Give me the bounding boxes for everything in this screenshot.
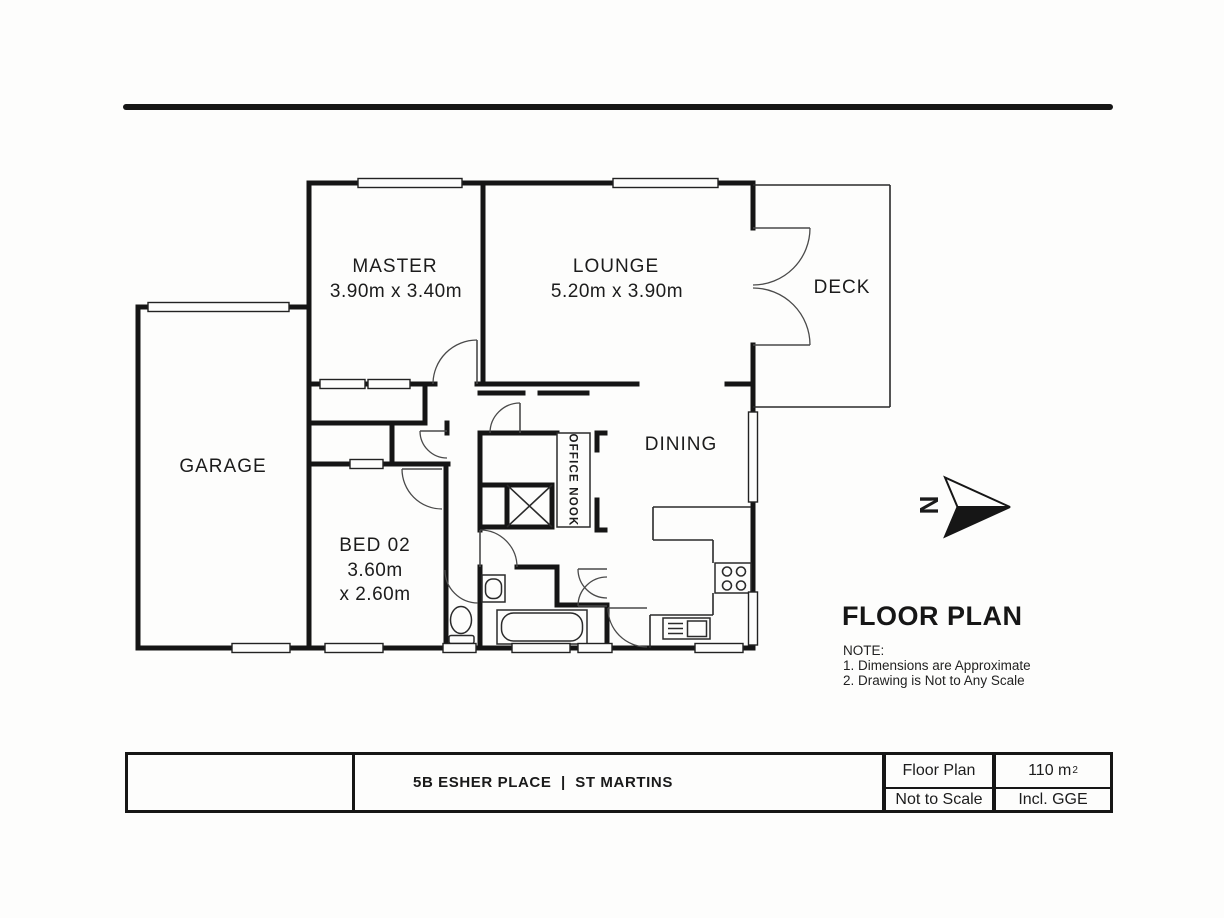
scale-text: Not to Scale: [886, 789, 992, 810]
note-line-2: 2. Drawing is Not to Any Scale: [843, 673, 1025, 688]
plan-heading: FLOOR PLAN: [842, 601, 1023, 631]
north-label: N: [914, 496, 944, 515]
kitchen-counter: [650, 507, 751, 648]
note-line-1: 1. Dimensions are Approximate: [843, 658, 1031, 673]
kitchen-sink: [663, 618, 710, 639]
lounge-dims: 5.20m x 3.90m: [551, 281, 683, 302]
bed02-dims-2: x 2.60m: [339, 584, 410, 605]
floor-plan-drawing: MASTER 3.90m x 3.40m LOUNGE 5.20m x 3.90…: [0, 0, 1224, 745]
stove: [715, 563, 751, 593]
dining-label: DINING: [645, 434, 718, 455]
bed02-dims-1: 3.60m: [347, 560, 402, 581]
master-label: MASTER: [352, 256, 437, 277]
master-dims: 3.90m x 3.40m: [330, 281, 462, 302]
area-note-text: Incl. GGE: [996, 789, 1110, 810]
area-text: 110 m2: [996, 755, 1110, 789]
windows: [148, 179, 758, 653]
doc-type-text: Floor Plan: [886, 755, 992, 789]
lounge-label: LOUNGE: [573, 256, 659, 277]
note-title: NOTE:: [843, 643, 884, 658]
title-block-type-cell: Floor Plan Not to Scale: [886, 755, 996, 810]
office-nook-label: OFFICE NOOK: [567, 433, 579, 526]
address-text: 5B ESHER PLACE | ST MARTINS: [413, 774, 673, 791]
annotation-block: FLOOR PLAN NOTE: 1. Dimensions are Appro…: [842, 601, 1031, 688]
garage-label: GARAGE: [179, 456, 266, 477]
title-block-address-cell: 5B ESHER PLACE | ST MARTINS: [355, 755, 886, 810]
title-block-logo-cell: [128, 755, 355, 810]
vanity: [482, 575, 505, 602]
scanned-page: MASTER 3.90m x 3.40m LOUNGE 5.20m x 3.90…: [0, 0, 1224, 918]
area-value: 110 m: [1028, 762, 1071, 780]
bathtub: [497, 610, 587, 644]
toilet: [449, 607, 474, 644]
title-block: 5B ESHER PLACE | ST MARTINS Floor Plan N…: [125, 752, 1113, 813]
title-block-area-cell: 110 m2 Incl. GGE: [996, 755, 1110, 810]
cupboard-x-icon: [507, 485, 552, 527]
bed02-label: BED 02: [339, 535, 410, 556]
north-arrow-icon: N: [914, 478, 1010, 537]
deck-label: DECK: [814, 277, 871, 298]
